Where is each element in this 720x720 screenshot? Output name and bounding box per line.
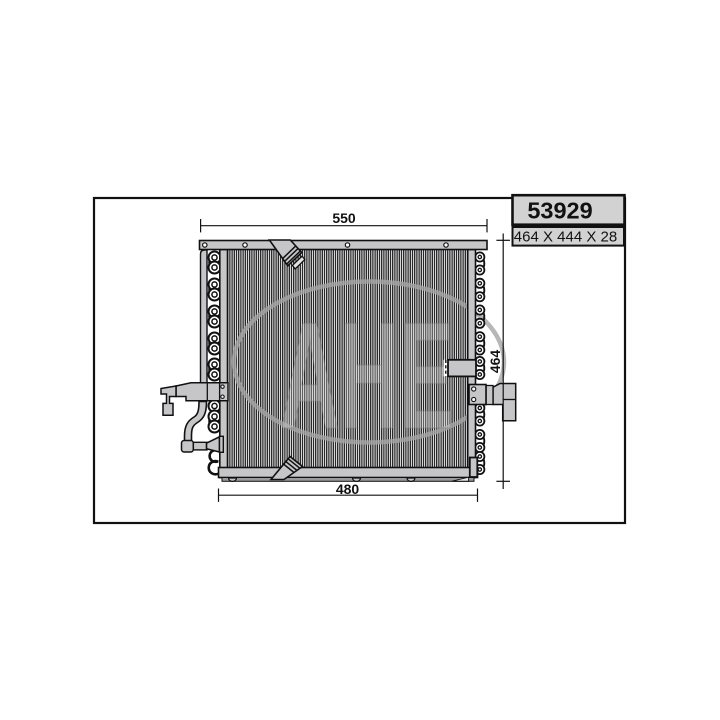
svg-text:464 X 444 X 28: 464 X 444 X 28 xyxy=(514,229,617,246)
svg-text:480: 480 xyxy=(336,481,360,497)
svg-text:550: 550 xyxy=(332,210,356,226)
svg-text:53929: 53929 xyxy=(527,198,592,224)
svg-text:464: 464 xyxy=(487,350,503,374)
svg-text:AHE: AHE xyxy=(280,291,454,461)
